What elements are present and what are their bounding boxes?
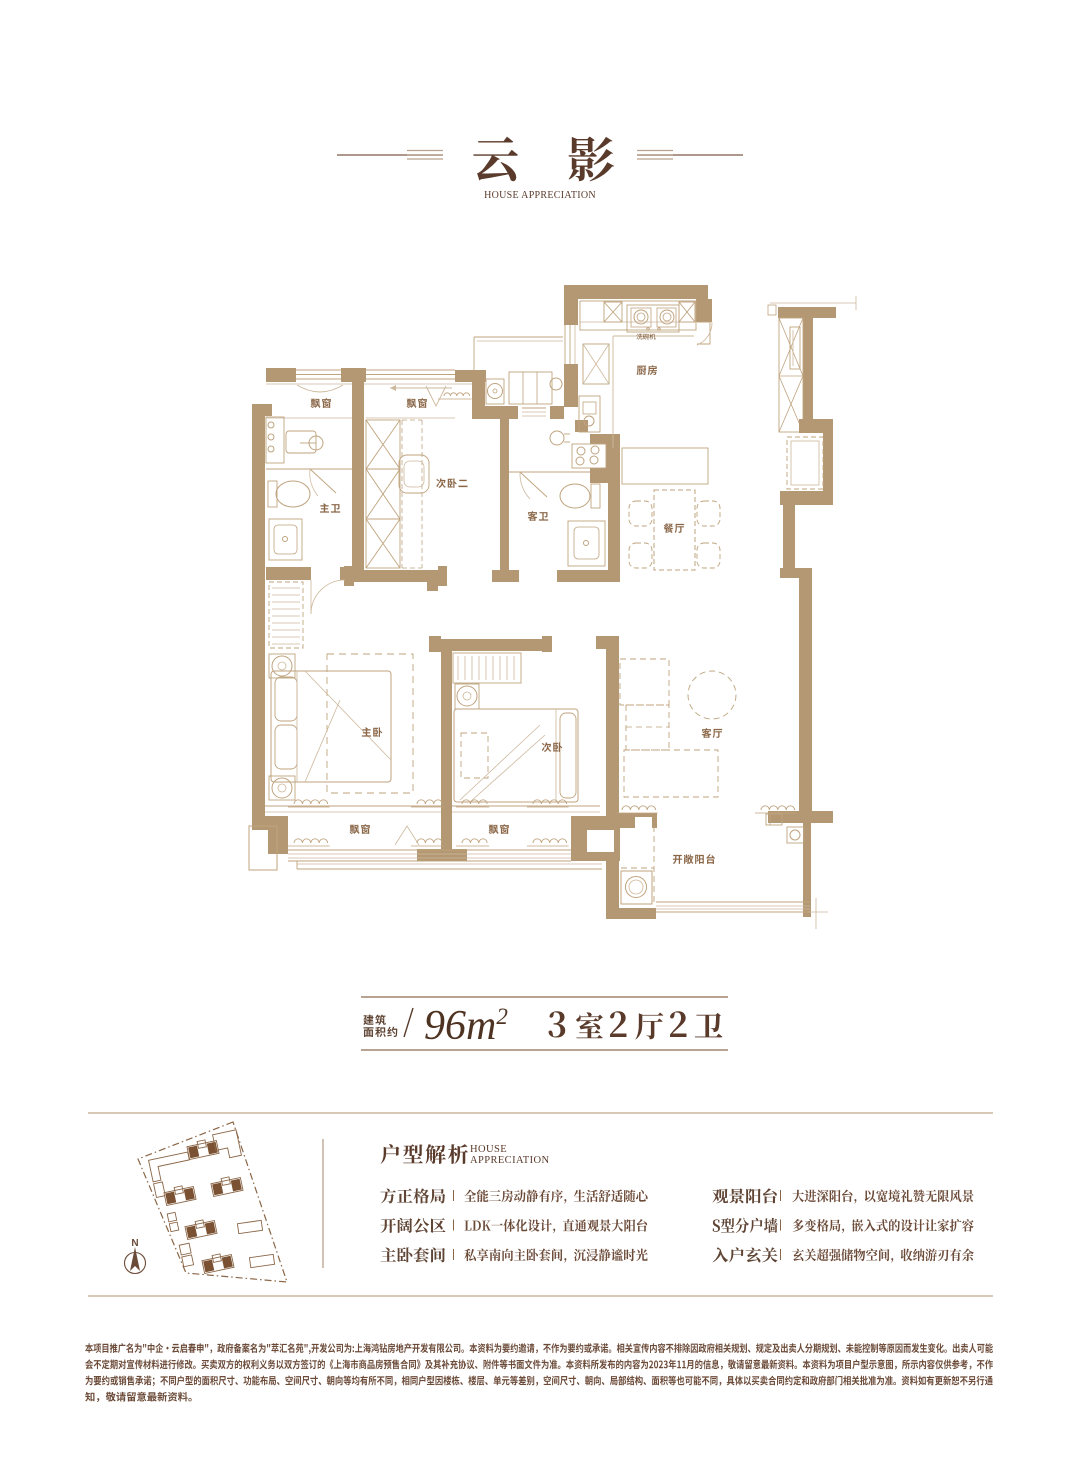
svg-text:N: N <box>131 1238 138 1249</box>
